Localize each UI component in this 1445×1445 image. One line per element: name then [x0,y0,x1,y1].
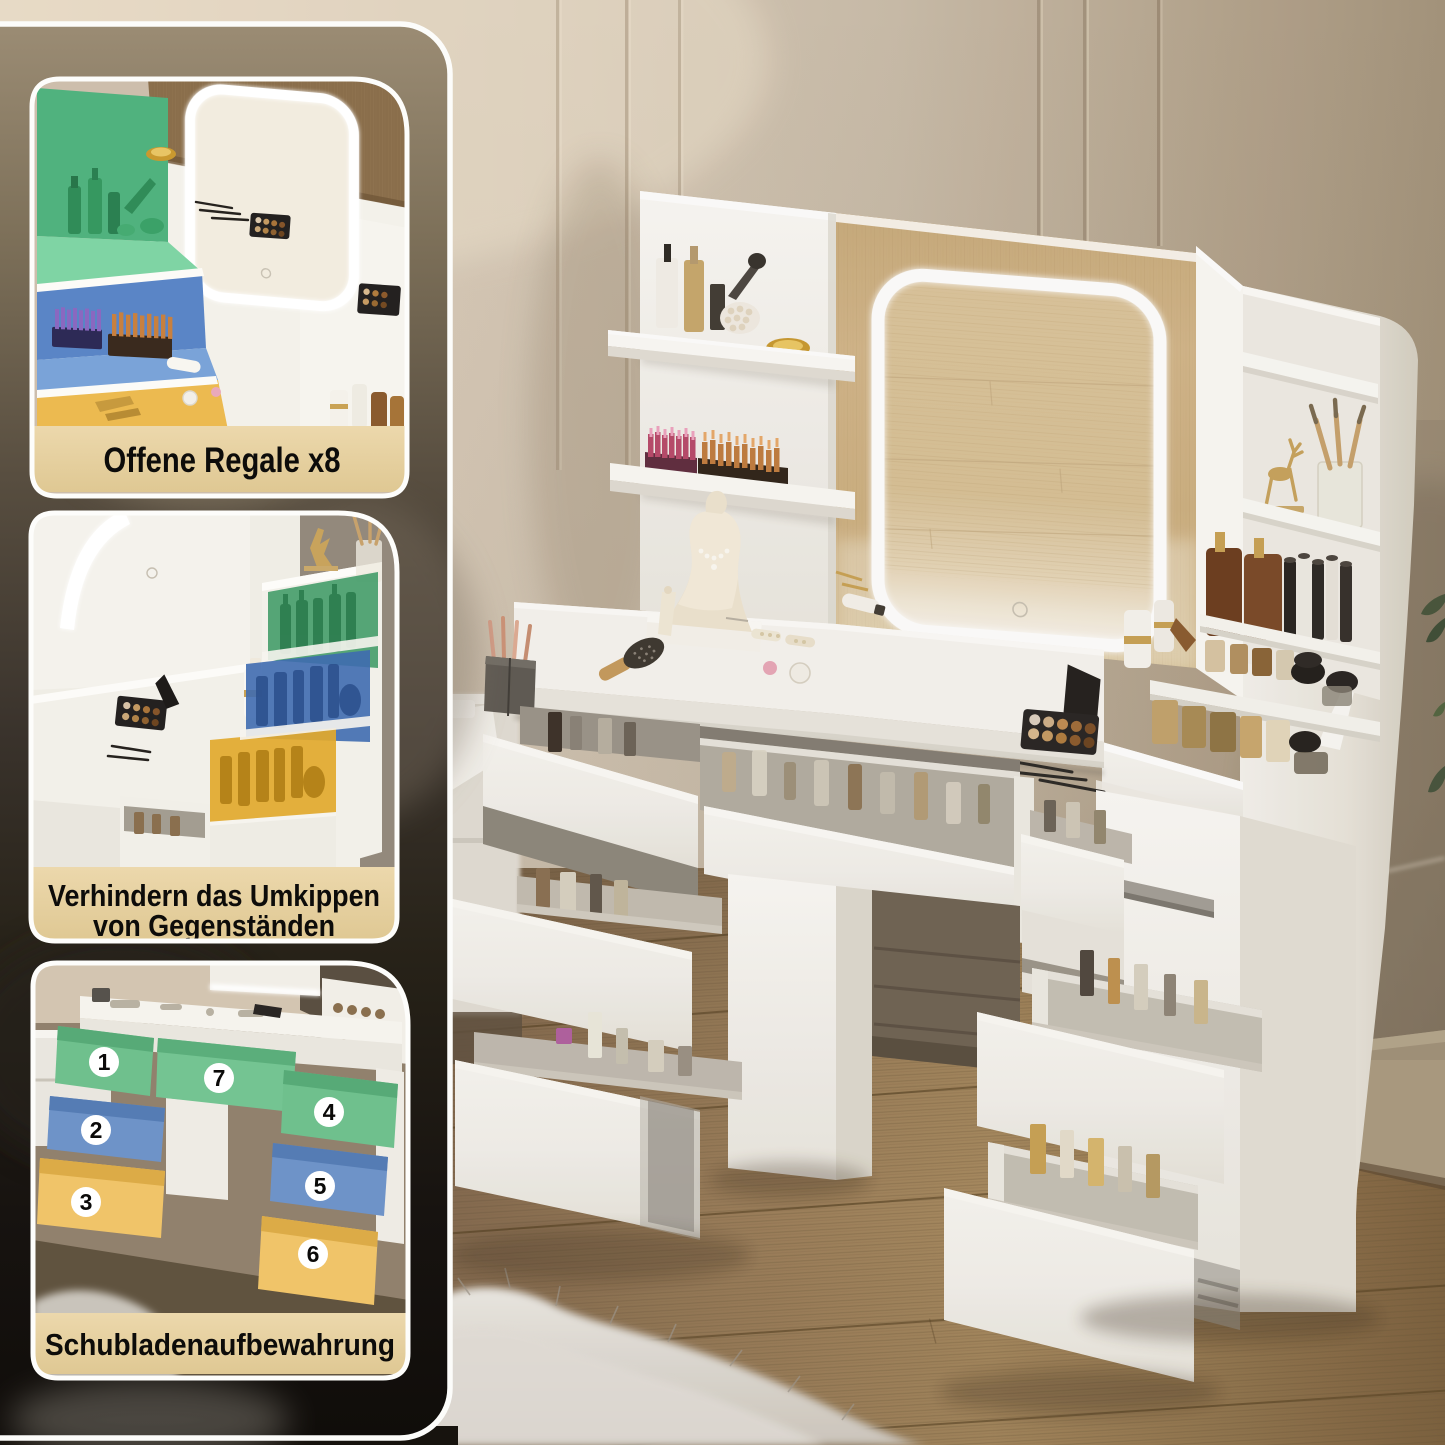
svg-text:von Gegenständen: von Gegenständen [93,908,335,943]
svg-text:2: 2 [90,1117,103,1143]
svg-text:7: 7 [213,1065,226,1091]
svg-text:3: 3 [80,1189,93,1215]
svg-text:4: 4 [323,1099,336,1125]
svg-text:5: 5 [314,1173,327,1199]
svg-text:1: 1 [98,1049,111,1075]
svg-text:6: 6 [307,1241,320,1267]
svg-text:Schubladenaufbewahrung: Schubladenaufbewahrung [45,1327,395,1362]
svg-text:Offene Regale x8: Offene Regale x8 [104,441,341,480]
